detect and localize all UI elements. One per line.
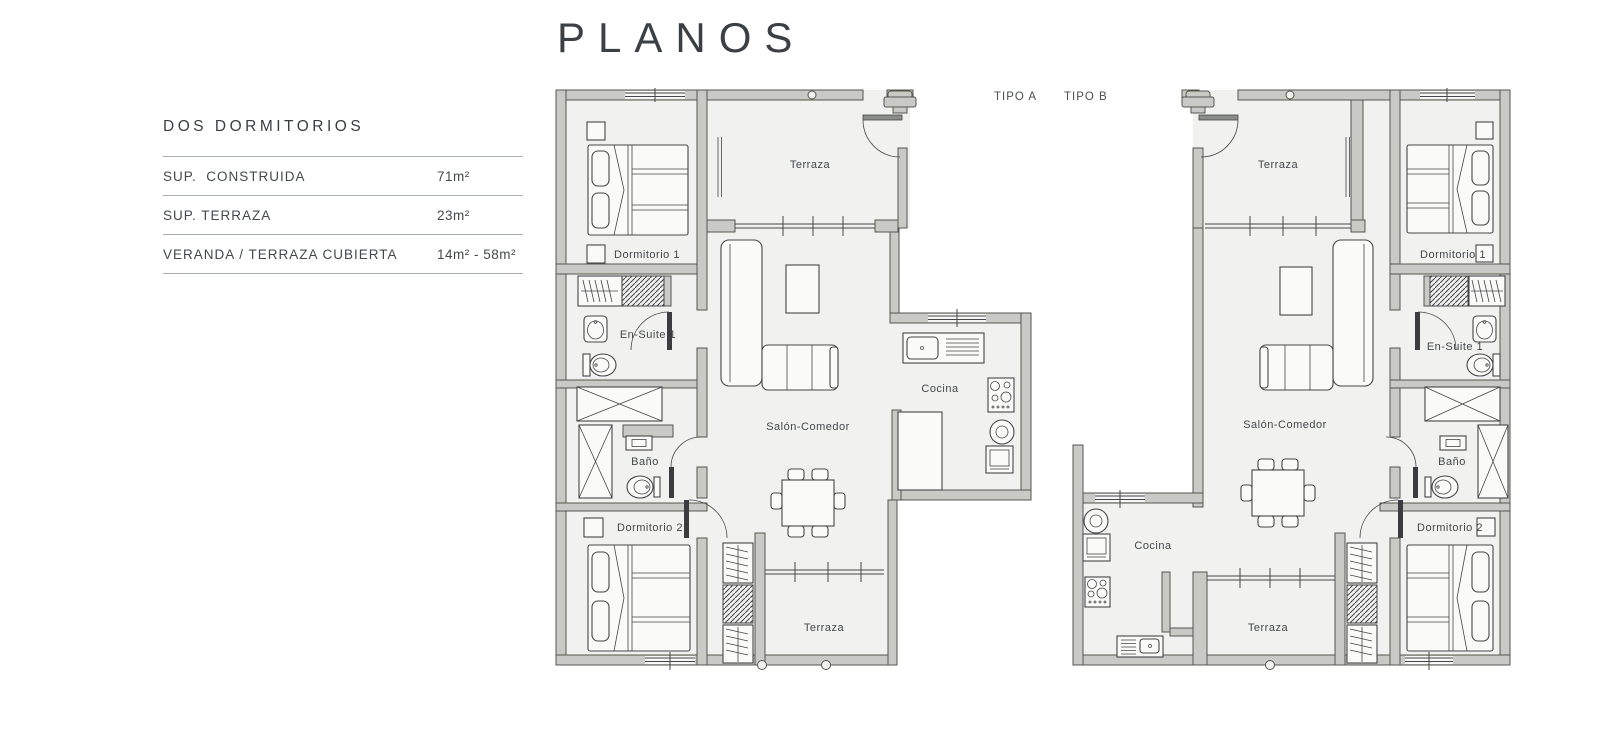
kitchen-sink [1117, 636, 1163, 657]
double-bed [588, 145, 688, 235]
spec-panel: DOS DORMITORIOS SUP. CONSTRUIDA 71m² SUP… [163, 118, 523, 274]
room-label-dormitorio-1: Dormitorio 1 [614, 249, 680, 261]
stove [988, 378, 1014, 412]
room-label-salon-comedor: Salón-Comedor [766, 421, 850, 433]
room-label-en-suite-1: En-Suite 1 [620, 329, 676, 341]
spec-label: SUP. TERRAZA [163, 208, 437, 223]
facade-ornament-icon [758, 661, 767, 670]
room-label-terraza-bottom: Terraza [1248, 622, 1289, 634]
nightstand [584, 518, 603, 537]
room-label-en-suite-1: En-Suite 1 [1427, 341, 1483, 353]
wardrobe [1430, 276, 1505, 306]
double-bed [588, 545, 690, 651]
page: PLANOS DOS DORMITORIOS SUP. CONSTRUIDA 7… [0, 0, 1600, 751]
spec-value: 23m² [437, 208, 470, 223]
spec-row-construida: SUP. CONSTRUIDA 71m² [163, 156, 523, 195]
stove [1085, 577, 1110, 607]
spec-label: VERANDA / TERRAZA CUBIERTA [163, 247, 437, 262]
sink [584, 316, 607, 342]
room-label-salon-comedor: Salón-Comedor [1243, 419, 1327, 431]
double-bed [1407, 545, 1493, 651]
facade-ornament-icon [822, 661, 831, 670]
spec-row-veranda: VERANDA / TERRAZA CUBIERTA 14m² - 58m² [163, 234, 523, 273]
bathroom-sink [1440, 436, 1466, 450]
room-label-bano: Baño [631, 456, 659, 468]
nightstand [587, 245, 605, 263]
facade-ornament-icon [808, 91, 816, 99]
kitchen-counter [898, 412, 942, 490]
room-label-terraza-top: Terraza [790, 159, 831, 171]
facade-ornament-icon [1286, 91, 1294, 99]
floorplan-tipo-a: Terraza Dormitorio 1 En-Suite 1 Baño Dor… [550, 88, 1035, 678]
facade-ornament-icon [1266, 661, 1275, 670]
room-label-cocina: Cocina [1134, 540, 1172, 552]
sink [1473, 316, 1496, 342]
nightstand [587, 122, 605, 140]
toilet [583, 354, 616, 376]
room-label-dormitorio-2: Dormitorio 2 [617, 522, 683, 534]
floorplan-tipo-b: Terraza Dormitorio 1 En-Suite 1 Baño Dor… [1055, 88, 1540, 678]
wardrobe [723, 543, 753, 663]
spec-heading: DOS DORMITORIOS [163, 118, 523, 136]
toilet [1467, 354, 1500, 376]
nightstand [1476, 122, 1493, 139]
wardrobe [1347, 543, 1377, 663]
double-bed [1407, 145, 1493, 233]
bathtub [1425, 387, 1500, 421]
room-label-dormitorio-1: Dormitorio 1 [1420, 249, 1486, 261]
spec-value: 71m² [437, 169, 470, 184]
toilet [1425, 476, 1458, 498]
spec-row-terraza: SUP. TERRAZA 23m² [163, 195, 523, 234]
bathroom-sink [626, 436, 652, 450]
toilet [627, 476, 660, 498]
room-label-bano: Baño [1438, 456, 1466, 468]
water-heater [990, 420, 1014, 444]
wardrobe [578, 276, 664, 306]
coffee-table [786, 265, 819, 313]
kitchen-sink [903, 333, 984, 363]
bathtub [577, 387, 662, 421]
spec-value: 14m² - 58m² [437, 247, 516, 262]
water-heater [1084, 509, 1108, 533]
oven [986, 446, 1013, 473]
shower [579, 425, 612, 498]
room-label-cocina: Cocina [921, 383, 959, 395]
spec-table: SUP. CONSTRUIDA 71m² SUP. TERRAZA 23m² V… [163, 156, 523, 274]
coffee-table [1280, 267, 1312, 315]
oven [1083, 534, 1110, 561]
page-title: PLANOS [557, 14, 805, 62]
room-label-dormitorio-2: Dormitorio 2 [1417, 522, 1483, 534]
spec-label: SUP. CONSTRUIDA [163, 169, 437, 184]
shower [1478, 425, 1508, 498]
room-label-terraza-bottom: Terraza [804, 622, 845, 634]
room-label-terraza-top: Terraza [1258, 159, 1299, 171]
